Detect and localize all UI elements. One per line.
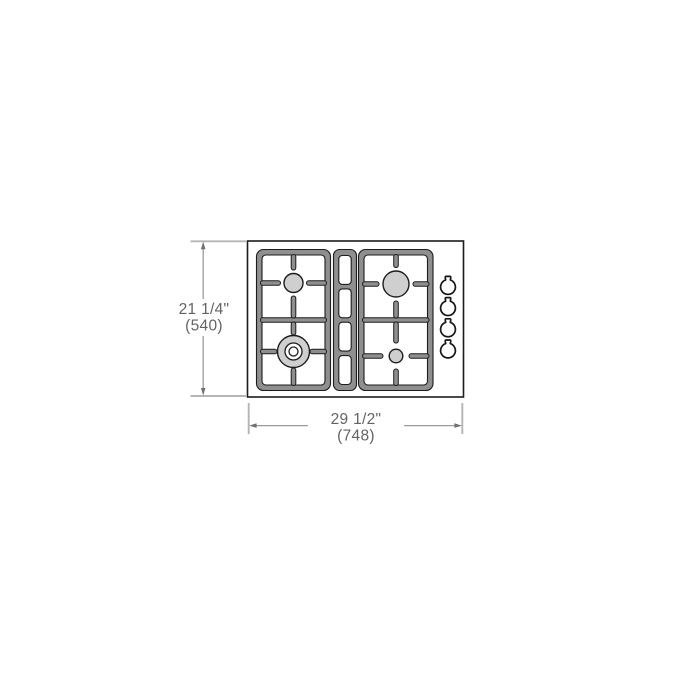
center-grate-strip: [334, 250, 357, 391]
left-grate: [257, 250, 331, 391]
grate-bar: [291, 255, 296, 271]
grate-bar: [363, 282, 380, 287]
height-dimension: 21 1/4" (540): [179, 241, 246, 396]
grate-bar: [394, 301, 399, 318]
grate-bar: [394, 255, 399, 268]
wok-burner-cap: [289, 347, 298, 356]
arrow-left-icon: [249, 423, 256, 428]
height-inches-label: 21 1/4": [179, 301, 230, 318]
grate-bar: [394, 322, 399, 343]
grate-bar: [261, 349, 278, 354]
right-grate: [359, 250, 434, 391]
grate-bar: [394, 369, 399, 386]
grate-bar: [310, 349, 327, 354]
height-mm-label: (540): [185, 318, 223, 335]
center-strip-slot: [339, 322, 351, 351]
width-inches-label: 29 1/2": [331, 411, 382, 428]
cooktop-dimension-diagram: 21 1/4" (540) 29 1/2" (748): [0, 0, 700, 700]
arrow-down-icon: [201, 388, 206, 396]
front-left-wok-burner: [278, 336, 310, 368]
center-strip-slot: [339, 289, 351, 318]
grate-bar: [291, 322, 296, 335]
grate-bar: [409, 354, 429, 359]
grate-bar: [261, 281, 281, 286]
center-strip-slot: [339, 256, 351, 285]
width-dimension: 29 1/2" (748): [249, 403, 463, 445]
grate-bar: [291, 368, 296, 386]
center-strip-slot: [339, 356, 351, 385]
grate-bar: [307, 281, 327, 286]
rear-left-burner: [284, 274, 303, 293]
grate-bar: [413, 282, 429, 287]
width-mm-label: (748): [337, 428, 375, 445]
diagram-canvas: 21 1/4" (540) 29 1/2" (748): [0, 0, 700, 700]
grate-bar: [363, 354, 384, 359]
front-right-burner: [389, 349, 403, 363]
grate-bar: [291, 296, 296, 318]
arrow-up-icon: [201, 242, 206, 250]
arrow-right-icon: [454, 423, 461, 428]
rear-right-burner: [383, 271, 409, 297]
